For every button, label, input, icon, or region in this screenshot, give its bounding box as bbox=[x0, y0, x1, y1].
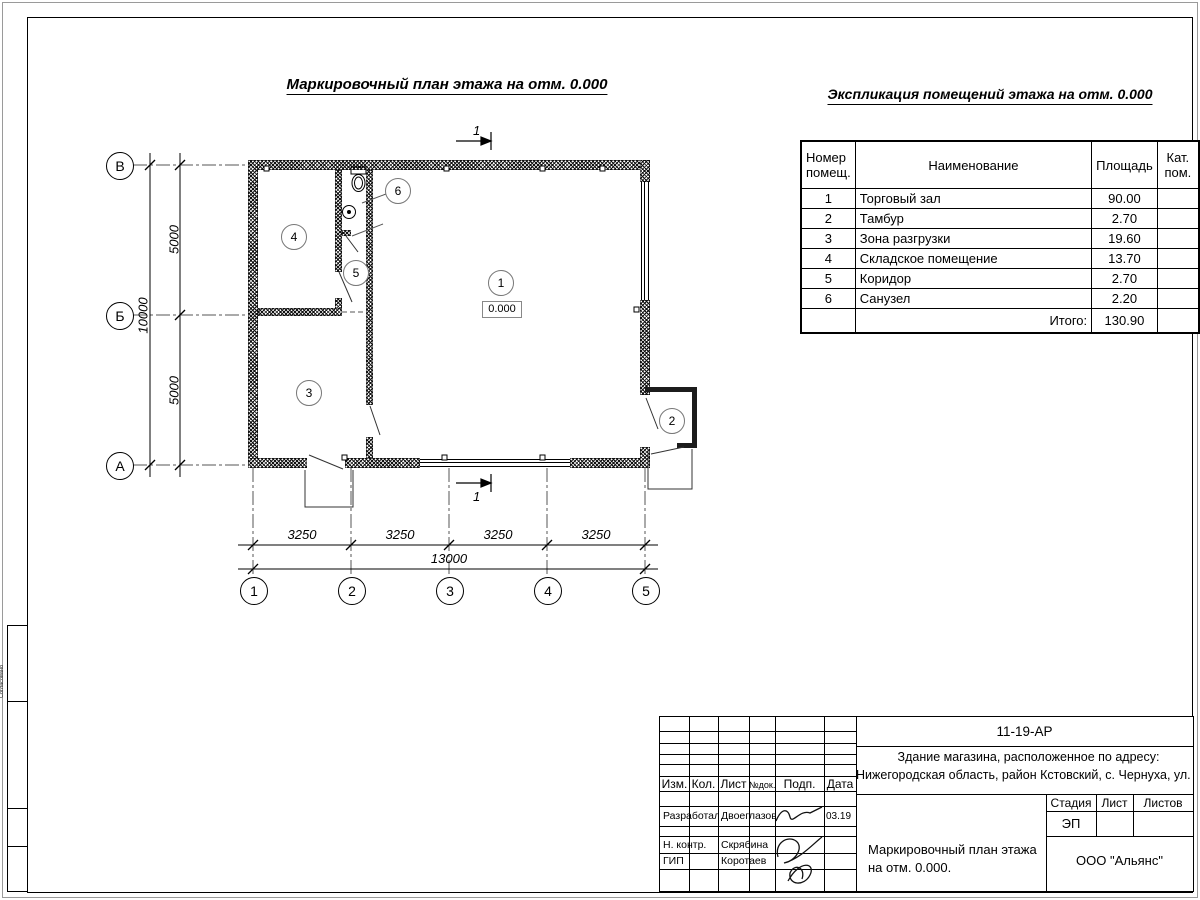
col-kol: Кол. bbox=[689, 777, 718, 791]
wall-tie-marks bbox=[264, 166, 639, 460]
grid-line bbox=[660, 731, 856, 732]
cell-name: Складское помещение bbox=[855, 249, 1091, 269]
grid-line bbox=[660, 764, 856, 765]
cell-name: Санузел bbox=[855, 289, 1091, 309]
grid-line bbox=[1046, 836, 1193, 837]
table-total-row: Итого: 130.90 bbox=[801, 309, 1199, 334]
axis-circle-4: 4 bbox=[534, 577, 562, 605]
cell-name: Тамбур bbox=[855, 209, 1091, 229]
header-num-l2: помещ. bbox=[806, 165, 851, 180]
cell-area: 19.60 bbox=[1092, 229, 1158, 249]
grid-line bbox=[1046, 811, 1193, 812]
col-list: Лист bbox=[718, 777, 749, 791]
axis-circle-a: А bbox=[106, 452, 134, 480]
sink-icon bbox=[343, 206, 356, 219]
cell-name: Торговый зал bbox=[855, 189, 1091, 209]
header-cat: Кат. пом. bbox=[1157, 141, 1199, 189]
leader-lines bbox=[352, 194, 386, 236]
grid-line bbox=[856, 794, 1193, 795]
sheet-label: Лист bbox=[1096, 796, 1133, 810]
dim-3250-2: 3250 bbox=[370, 527, 430, 542]
cell-name: Коридор bbox=[855, 269, 1091, 289]
cell-num: 4 bbox=[801, 249, 855, 269]
role-label: ГИП bbox=[663, 855, 719, 867]
dim-5000-1: 5000 bbox=[167, 210, 182, 270]
drawing-sheet: Согласовано Маркировочный план этажа на … bbox=[0, 0, 1200, 900]
axis-circle-1: 1 bbox=[240, 577, 268, 605]
header-area: Площадь bbox=[1092, 141, 1158, 189]
cell-num: 2 bbox=[801, 209, 855, 229]
cell-name: Зона разгрузки bbox=[855, 229, 1091, 249]
total-value: 130.90 bbox=[1092, 309, 1158, 334]
company-name: ООО "Альянс" bbox=[1046, 853, 1193, 868]
role-date: 03.19 bbox=[826, 811, 856, 822]
cell-num: 5 bbox=[801, 269, 855, 289]
table-row: 6 Санузел 2.20 bbox=[801, 289, 1199, 309]
header-name: Наименование bbox=[855, 141, 1091, 189]
cell-area: 90.00 bbox=[1092, 189, 1158, 209]
drawing-title-line2: на отм. 0.000. bbox=[868, 860, 1043, 875]
explication-table: Номер помещ. Наименование Площадь Кат. п… bbox=[800, 140, 1200, 334]
cell-cat bbox=[1157, 269, 1199, 289]
dim-13000: 13000 bbox=[409, 551, 489, 566]
room-marker-2: 2 bbox=[659, 408, 685, 434]
cell-cat bbox=[1157, 249, 1199, 269]
cell-cat bbox=[1157, 289, 1199, 309]
drawing-title-line1: Маркировочный план этажа bbox=[868, 842, 1043, 857]
stage-value: ЭП bbox=[1046, 816, 1096, 831]
room-marker-3: 3 bbox=[296, 380, 322, 406]
porch-outlines bbox=[305, 449, 692, 507]
stage-label: Стадия bbox=[1046, 796, 1096, 810]
col-izm: Изм. bbox=[660, 777, 689, 791]
cell-empty bbox=[801, 309, 855, 334]
section-label-bottom: 1 bbox=[473, 489, 480, 504]
table-row: 1 Торговый зал 90.00 bbox=[801, 189, 1199, 209]
col-data: Дата bbox=[824, 777, 856, 791]
header-num: Номер помещ. bbox=[801, 141, 855, 189]
role-name: Скрябина bbox=[721, 839, 775, 851]
header-cat-l1: Кат. bbox=[1167, 150, 1190, 165]
cell-area: 2.70 bbox=[1092, 269, 1158, 289]
cell-empty bbox=[1157, 309, 1199, 334]
axis-circle-b: Б bbox=[106, 302, 134, 330]
axis-circle-3: 3 bbox=[436, 577, 464, 605]
grid-line bbox=[856, 746, 1193, 747]
room-marker-4: 4 bbox=[281, 224, 307, 250]
role-name: Коротаев bbox=[721, 855, 775, 867]
room-marker-6: 6 bbox=[385, 178, 411, 204]
grid-line bbox=[660, 754, 856, 755]
address-line2: Нижегородская область, район Кстовский, … bbox=[856, 768, 1194, 782]
role-label: Разработал bbox=[663, 810, 719, 822]
room-marker-5: 5 bbox=[343, 260, 369, 286]
cell-cat bbox=[1157, 189, 1199, 209]
table-header-row: Номер помещ. Наименование Площадь Кат. п… bbox=[801, 141, 1199, 189]
table-row: 4 Складское помещение 13.70 bbox=[801, 249, 1199, 269]
toilet-icon bbox=[351, 167, 366, 192]
header-cat-l2: пом. bbox=[1164, 165, 1191, 180]
role-label: Н. контр. bbox=[663, 839, 719, 851]
dim-3250-3: 3250 bbox=[468, 527, 528, 542]
header-num-l1: Номер bbox=[806, 150, 846, 165]
grid-line bbox=[660, 791, 856, 792]
dimension-lines bbox=[150, 153, 658, 569]
doc-number: 11-19-АР bbox=[856, 724, 1193, 739]
dim-10000: 10000 bbox=[136, 281, 151, 351]
cell-cat bbox=[1157, 229, 1199, 249]
cell-area: 2.70 bbox=[1092, 209, 1158, 229]
level-mark: 0.000 bbox=[482, 301, 522, 318]
table-row: 2 Тамбур 2.70 bbox=[801, 209, 1199, 229]
axis-circle-v: В bbox=[106, 152, 134, 180]
signatures bbox=[772, 801, 828, 889]
section-label-top: 1 bbox=[473, 123, 480, 138]
cell-area: 2.20 bbox=[1092, 289, 1158, 309]
axis-circle-2: 2 bbox=[338, 577, 366, 605]
sheets-label: Листов bbox=[1133, 796, 1193, 810]
cell-num: 3 bbox=[801, 229, 855, 249]
cell-num: 1 bbox=[801, 189, 855, 209]
signature bbox=[777, 837, 822, 863]
role-name: Двоеглазов bbox=[721, 810, 775, 822]
cell-area: 13.70 bbox=[1092, 249, 1158, 269]
dim-3250-4: 3250 bbox=[566, 527, 626, 542]
table-row: 5 Коридор 2.70 bbox=[801, 269, 1199, 289]
dimension-ticks bbox=[145, 160, 650, 574]
grid-line bbox=[856, 717, 857, 891]
cell-num: 6 bbox=[801, 289, 855, 309]
address-line1: Здание магазина, расположенное по адресу… bbox=[856, 750, 1194, 764]
col-ndok: №док. bbox=[749, 780, 775, 790]
col-podp: Подп. bbox=[775, 777, 824, 791]
signature bbox=[776, 807, 822, 821]
signature bbox=[788, 865, 811, 883]
cell-cat bbox=[1157, 209, 1199, 229]
axis-lines bbox=[133, 165, 645, 577]
total-label: Итого: bbox=[855, 309, 1091, 334]
room-marker-1: 1 bbox=[488, 270, 514, 296]
table-row: 3 Зона разгрузки 19.60 bbox=[801, 229, 1199, 249]
grid-line bbox=[660, 743, 856, 744]
dim-3250-1: 3250 bbox=[272, 527, 332, 542]
axis-circle-5: 5 bbox=[632, 577, 660, 605]
title-block: Изм. Кол. Лист №док. Подп. Дата Разработ… bbox=[659, 716, 1194, 892]
dim-5000-2: 5000 bbox=[167, 361, 182, 421]
